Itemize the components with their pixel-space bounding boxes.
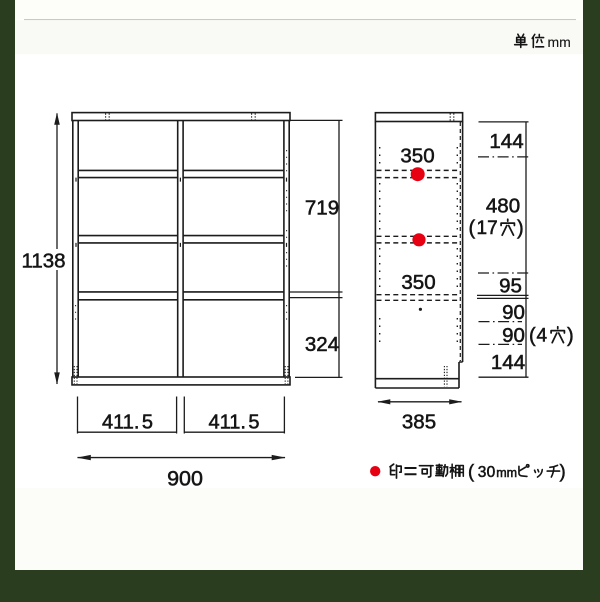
svg-text:900: 900 xyxy=(167,467,203,491)
svg-text:90: 90 xyxy=(502,324,525,347)
svg-text:(: ( xyxy=(529,325,536,347)
svg-text:90: 90 xyxy=(502,301,525,324)
svg-text:): ) xyxy=(517,218,524,240)
svg-text:95: 95 xyxy=(499,274,522,297)
svg-text:324: 324 xyxy=(305,333,339,356)
svg-text:mm: mm xyxy=(496,466,517,480)
svg-text:411.5: 411.5 xyxy=(208,412,259,434)
svg-text:350: 350 xyxy=(401,271,435,294)
svg-text:17: 17 xyxy=(477,218,498,239)
svg-text:480: 480 xyxy=(486,194,520,217)
svg-text:719: 719 xyxy=(305,197,339,220)
svg-text:4: 4 xyxy=(537,326,548,347)
svg-text:(: ( xyxy=(469,218,476,240)
svg-text:144: 144 xyxy=(489,130,523,153)
svg-text:385: 385 xyxy=(402,411,436,434)
svg-text:144: 144 xyxy=(491,351,525,374)
svg-text:1138: 1138 xyxy=(21,250,65,273)
svg-text:350: 350 xyxy=(400,145,434,168)
svg-text:): ) xyxy=(567,325,574,347)
svg-text:): ) xyxy=(560,461,566,482)
svg-text:30: 30 xyxy=(478,464,496,481)
svg-text:411.5: 411.5 xyxy=(102,412,153,434)
svg-text:(: ( xyxy=(468,461,475,482)
svg-text:mm: mm xyxy=(548,34,571,50)
